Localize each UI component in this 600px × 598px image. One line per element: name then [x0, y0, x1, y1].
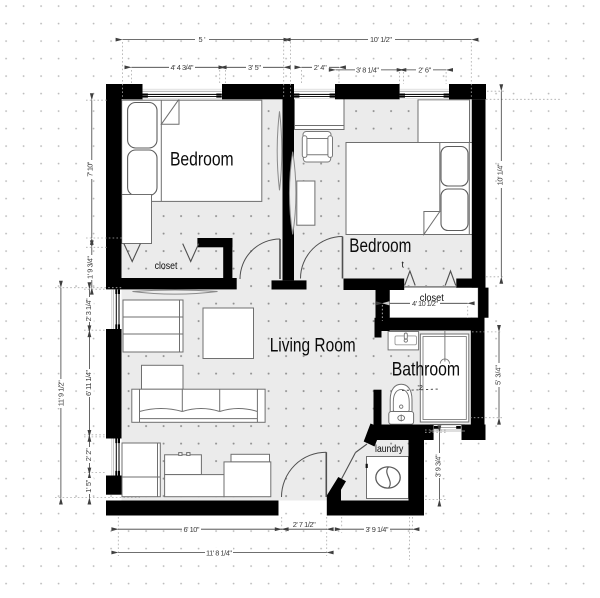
- svg-text:6' 11 1/4": 6' 11 1/4": [84, 370, 93, 396]
- svg-text:2' 3 1/4": 2' 3 1/4": [84, 298, 93, 321]
- svg-text:6' 10": 6' 10": [184, 525, 200, 534]
- svg-text:10' 1/2": 10' 1/2": [370, 35, 392, 44]
- svg-text:11' 9 1/2": 11' 9 1/2": [56, 380, 65, 406]
- svg-text:Bedroom: Bedroom: [349, 235, 411, 257]
- svg-text:closet: closet: [155, 261, 178, 272]
- svg-text:Living Room: Living Room: [270, 335, 356, 357]
- svg-text:2' 6": 2' 6": [418, 66, 431, 75]
- svg-text:3' 9 3/4": 3' 9 3/4": [434, 454, 443, 477]
- svg-text:closet: closet: [420, 293, 444, 304]
- svg-text:7' 10": 7' 10": [86, 161, 95, 176]
- svg-text:2' 2": 2' 2": [84, 448, 93, 461]
- svg-text:4' 4 3/4": 4' 4 3/4": [171, 63, 194, 72]
- svg-text:2' 7 1/2": 2' 7 1/2": [293, 520, 316, 529]
- svg-text:11' 8 1/4": 11' 8 1/4": [206, 548, 232, 557]
- svg-text:5' 3/4": 5' 3/4": [494, 365, 503, 385]
- svg-text:2' 4": 2' 4": [314, 63, 327, 72]
- svg-text:laundry: laundry: [375, 443, 404, 455]
- svg-text:10' 1/4": 10' 1/4": [496, 163, 505, 185]
- svg-text:'2: '2: [418, 385, 423, 392]
- svg-text:1' 9 3/4": 1' 9 3/4": [86, 256, 95, 279]
- svg-text:5': 5': [199, 35, 207, 44]
- svg-text:Bathroom: Bathroom: [392, 359, 460, 381]
- svg-text:3' 9 1/4": 3' 9 1/4": [366, 525, 389, 534]
- svg-text:Bedroom: Bedroom: [170, 149, 234, 171]
- svg-text:1' 5": 1' 5": [84, 479, 93, 492]
- svg-text:3' 8 1/4": 3' 8 1/4": [356, 66, 379, 75]
- svg-text:3' 5": 3' 5": [248, 63, 261, 72]
